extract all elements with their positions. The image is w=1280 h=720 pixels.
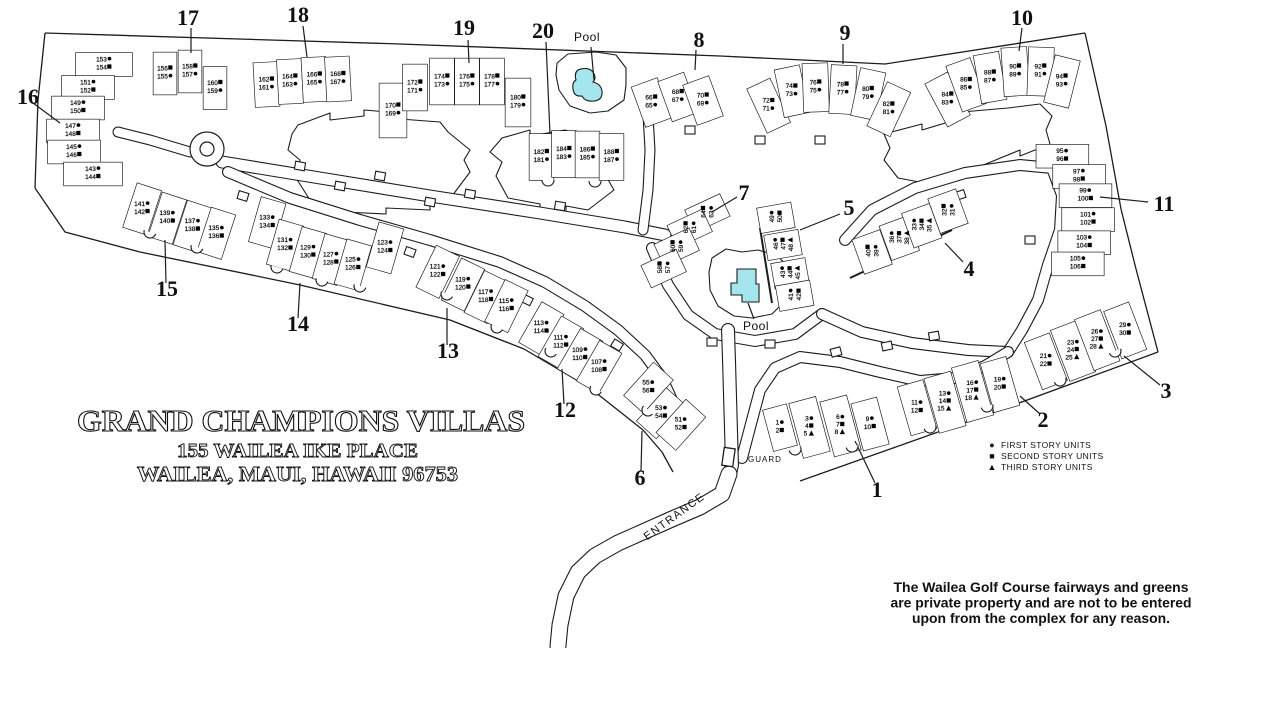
svg-text:11: 11 xyxy=(1154,191,1175,216)
svg-text:Pool: Pool xyxy=(743,319,769,333)
svg-text:6: 6 xyxy=(635,465,646,490)
svg-text:15: 15 xyxy=(156,276,178,301)
svg-text:13: 13 xyxy=(437,338,459,363)
svg-text:GRAND CHAMPIONS VILLAS: GRAND CHAMPIONS VILLAS xyxy=(77,403,525,438)
svg-text:1: 1 xyxy=(872,477,883,502)
svg-text:SECOND STORY UNITS: SECOND STORY UNITS xyxy=(1001,451,1104,461)
svg-text:5: 5 xyxy=(844,195,855,220)
svg-text:The Wailea Golf Course fairway: The Wailea Golf Course fairways and gree… xyxy=(894,580,1189,595)
svg-text:17: 17 xyxy=(177,5,199,30)
svg-text:19: 19 xyxy=(453,15,475,40)
svg-text:■: ■ xyxy=(989,451,994,461)
svg-text:WAILEA, MAUI, HAWAII 96753: WAILEA, MAUI, HAWAII 96753 xyxy=(137,462,458,486)
svg-text:FIRST STORY UNITS: FIRST STORY UNITS xyxy=(1001,440,1091,450)
svg-text:THIRD STORY UNITS: THIRD STORY UNITS xyxy=(1001,462,1093,472)
svg-text:4: 4 xyxy=(964,256,975,281)
svg-text:Pool: Pool xyxy=(574,30,600,44)
svg-text:14: 14 xyxy=(287,311,309,336)
svg-text:3: 3 xyxy=(1161,378,1172,403)
svg-text:18: 18 xyxy=(287,2,309,27)
svg-text:●: ● xyxy=(989,440,994,450)
svg-text:7: 7 xyxy=(739,180,750,205)
svg-text:9: 9 xyxy=(840,20,851,45)
svg-text:12: 12 xyxy=(554,397,576,422)
svg-text:upon from the complex for any: upon from the complex for any reason. xyxy=(912,611,1170,626)
svg-text:GUARD: GUARD xyxy=(748,455,782,464)
svg-text:are private property and are n: are private property and are not to be e… xyxy=(891,596,1192,611)
svg-text:▲: ▲ xyxy=(988,462,997,472)
svg-text:2: 2 xyxy=(1038,407,1049,432)
svg-text:20: 20 xyxy=(532,18,554,43)
svg-text:155 WAILEA IKE PLACE: 155 WAILEA IKE PLACE xyxy=(177,440,418,462)
svg-text:8: 8 xyxy=(694,27,705,52)
svg-text:10: 10 xyxy=(1011,5,1033,30)
svg-text:16: 16 xyxy=(17,84,39,109)
